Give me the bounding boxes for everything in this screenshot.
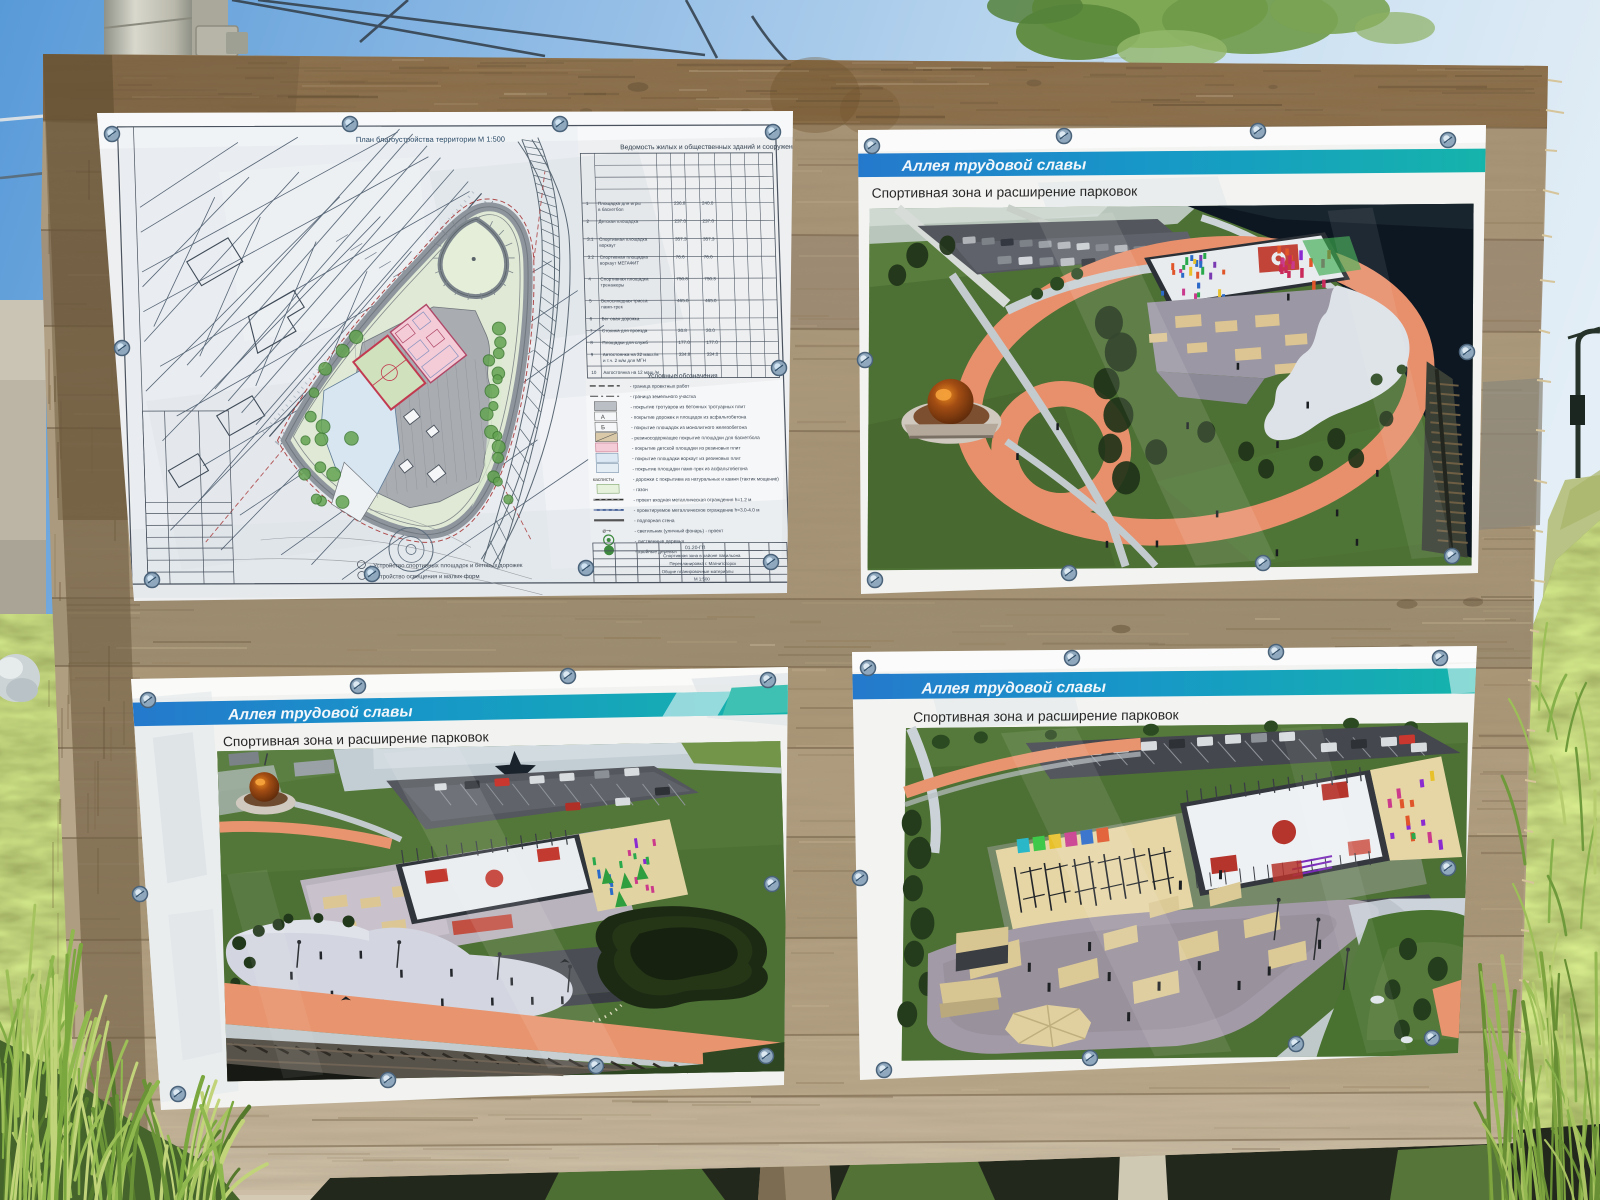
svg-text:357.3: 357.3 xyxy=(703,236,715,241)
svg-text:и т.ч. 2 м/м для МГН: и т.ч. 2 м/м для МГН xyxy=(603,358,646,363)
svg-text:Детская площадка: Детская площадка xyxy=(598,219,638,224)
svg-text:750.8: 750.8 xyxy=(676,276,688,281)
svg-text:Общие планировочные материалы: Общие планировочные материалы xyxy=(662,569,734,574)
svg-text:касписты: касписты xyxy=(593,477,615,483)
svg-text:- газон: - газон xyxy=(633,488,648,493)
svg-text:3.2: 3.2 xyxy=(588,255,595,260)
svg-text:- дорожки с покрытием из натур: - дорожки с покрытием из натуральных и к… xyxy=(633,476,780,482)
svg-text:Ведомость жилых и общественных: Ведомость жилых и общественных зданий и … xyxy=(620,143,801,151)
svg-text:- проектируемое металлическое: - проектируемое металлическое ограждение… xyxy=(634,508,760,514)
svg-text:237.0: 237.0 xyxy=(674,219,686,224)
svg-text:- резиносодержащее покрытие пл: - резиносодержащее покрытие площадки для… xyxy=(631,435,760,441)
svg-text:3.1: 3.1 xyxy=(587,237,594,242)
svg-text:Условные обозначения: Условные обозначения xyxy=(647,372,718,380)
svg-text:Велосипедная трасса: Велосипедная трасса xyxy=(601,298,648,303)
svg-text:01.20-ГП: 01.20-ГП xyxy=(685,545,706,551)
svg-text:10: 10 xyxy=(591,370,597,375)
svg-text:- лиственные деревья: - лиственные деревья xyxy=(635,540,685,545)
svg-text:Спортивная площадка: Спортивная площадка xyxy=(600,255,649,260)
svg-text:76.0: 76.0 xyxy=(704,254,714,259)
svg-text:Аллея трудовой славы: Аллея трудовой славы xyxy=(227,703,413,723)
svg-text:Аллея трудовой славы: Аллея трудовой славы xyxy=(920,679,1106,698)
svg-text:- проект входная металлическая: - проект входная металлическая ограждени… xyxy=(633,497,751,503)
svg-text:334.8: 334.8 xyxy=(679,352,691,357)
svg-text:Площадка для игры: Площадка для игры xyxy=(598,201,641,206)
svg-text:М 1:500: М 1:500 xyxy=(694,576,711,581)
svg-text:⌀⊸: ⌀⊸ xyxy=(602,529,611,535)
svg-text:памп-трек: памп-трек xyxy=(601,304,624,309)
svg-text:30.8: 30.8 xyxy=(678,328,688,333)
svg-text:Перепланировка г. Магнитогорск: Перепланировка г. Магнитогорск xyxy=(669,561,736,566)
svg-text:в баскетбол: в баскетбол xyxy=(598,207,624,212)
svg-text:236.8: 236.8 xyxy=(674,201,686,206)
svg-text:- покрытие площадок из монолит: - покрытие площадок из монолитного желез… xyxy=(631,425,747,431)
svg-text:- покрытие площадки памп-трек: - покрытие площадки памп-трек из асфальт… xyxy=(632,466,748,472)
svg-text:334.0: 334.0 xyxy=(707,352,719,357)
svg-text:воркаут: воркаут xyxy=(599,243,617,248)
svg-text:- Устройство спортивных площад: - Устройство спортивных площадок и бегов… xyxy=(369,562,523,569)
svg-text:тренажеры: тренажеры xyxy=(600,282,624,287)
svg-text:Автостоянка на 32 маш./м: Автостоянка на 32 маш./м xyxy=(603,352,659,357)
svg-text:357.3: 357.3 xyxy=(675,237,687,242)
svg-text:A: A xyxy=(601,415,605,421)
svg-text:- покрытие площадки воркаут из: - покрытие площадки воркаут из резиновых… xyxy=(632,457,742,462)
svg-text:Спортивная зона в районе павил: Спортивная зона в районе павильона xyxy=(663,553,741,558)
svg-text:Спортивная зона и расширение п: Спортивная зона и расширение парковок xyxy=(872,184,1139,201)
svg-text:- подпорная стена: - подпорная стена xyxy=(634,519,675,524)
svg-text:76.6: 76.6 xyxy=(676,254,686,259)
svg-text:Площадки для служб: Площадки для служб xyxy=(602,340,648,345)
svg-text:750.3: 750.3 xyxy=(704,276,716,281)
svg-text:465.0: 465.0 xyxy=(705,298,717,303)
svg-text:- покрытие дорожек и площадок: - покрытие дорожек и площадок из асфальт… xyxy=(631,415,747,421)
svg-text:воркаут МЕГАФИТ: воркаут МЕГАФИТ xyxy=(600,261,640,266)
svg-text:- граница земельного участка: - граница земельного участка xyxy=(630,395,696,400)
svg-text:- покрытие тротуаров из бетонн: - покрытие тротуаров из бетонных тротуар… xyxy=(630,404,746,410)
svg-text:Б: Б xyxy=(601,425,605,431)
svg-text:240.0: 240.0 xyxy=(702,201,714,206)
svg-text:Спортивная площадка: Спортивная площадка xyxy=(600,276,649,281)
svg-text:30.0: 30.0 xyxy=(706,328,716,333)
svg-text:237.0: 237.0 xyxy=(702,219,714,224)
svg-text:Спортивная зона и расширение п: Спортивная зона и расширение парковок xyxy=(913,706,1180,725)
svg-text:Стоянка для проезда: Стоянка для проезда xyxy=(602,328,648,333)
svg-text:- граница проектных работ: - граница проектных работ xyxy=(630,384,690,390)
svg-text:177.0: 177.0 xyxy=(678,340,690,345)
svg-text:- Устройство освещения и малых: - Устройство освещения и малых форм xyxy=(370,573,480,580)
svg-text:465.0: 465.0 xyxy=(677,298,689,303)
svg-text:Бег овая дорожка: Бег овая дорожка xyxy=(602,316,640,321)
svg-text:177.0: 177.0 xyxy=(706,340,718,345)
svg-text:Аллея трудовой славы: Аллея трудовой славы xyxy=(901,157,1087,175)
svg-text:Спортивная площадка: Спортивная площадка xyxy=(599,237,648,242)
